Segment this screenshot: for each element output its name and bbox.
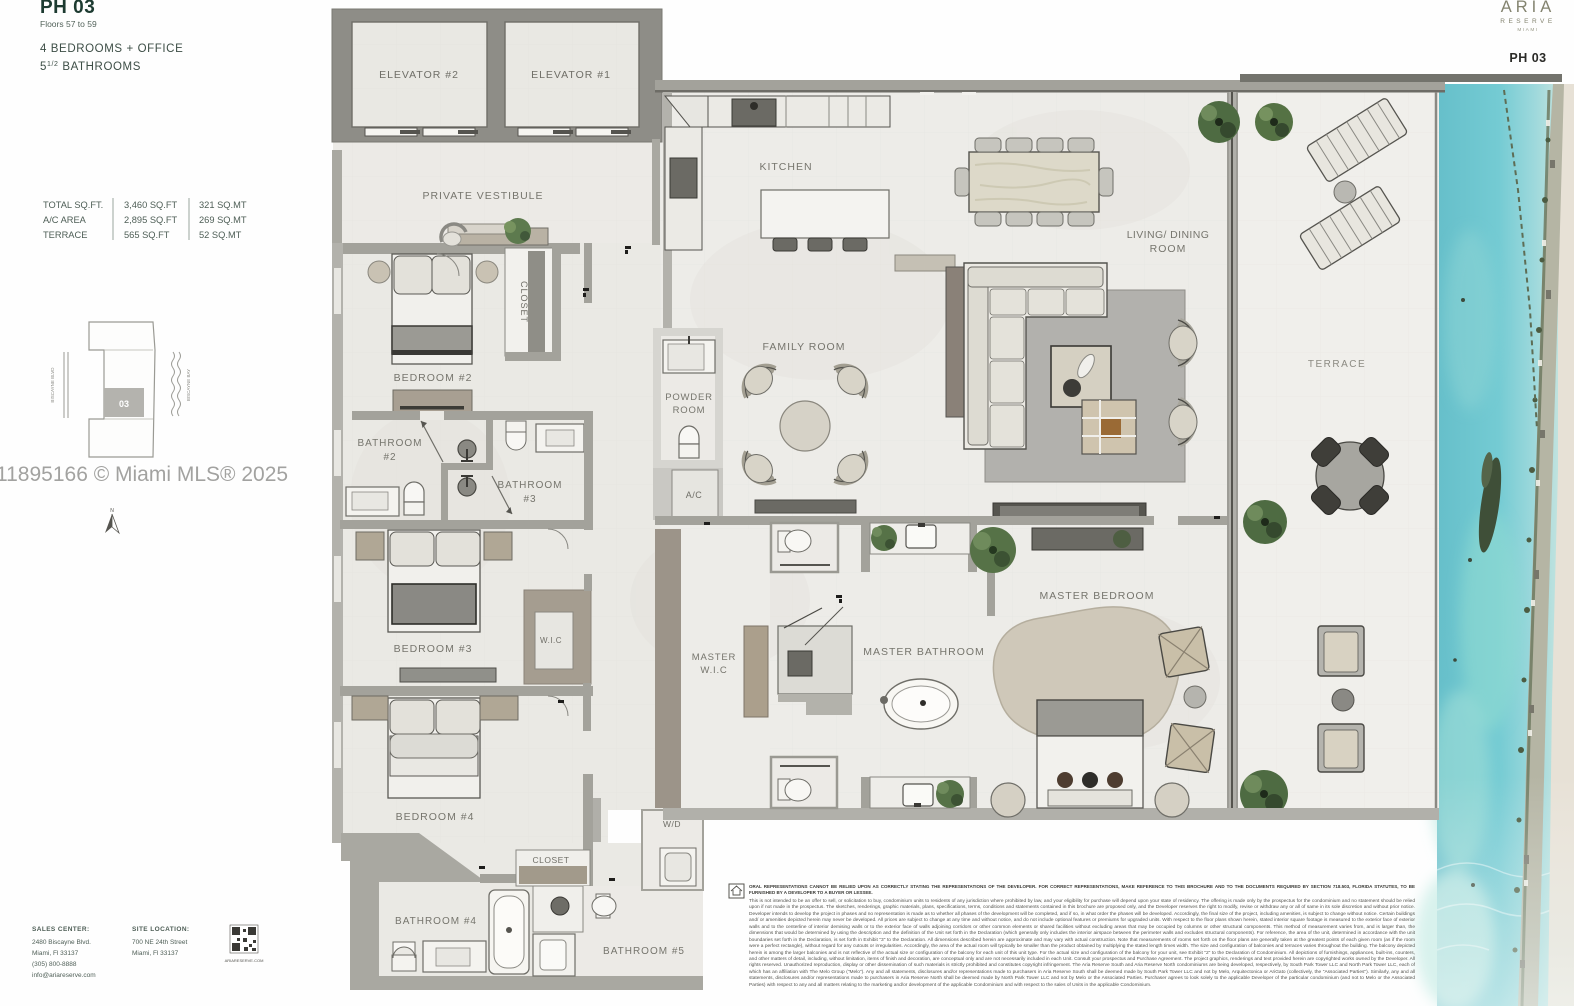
svg-text:51/2 BATHROOMS: 51/2 BATHROOMS: [40, 61, 141, 73]
svg-text:TERRACE: TERRACE: [1308, 359, 1366, 370]
svg-text:A/C AREA: A/C AREA: [43, 215, 87, 225]
svg-text:RESERVE: RESERVE: [1500, 18, 1555, 25]
svg-text:CLOSET: CLOSET: [532, 855, 569, 865]
svg-text:269 SQ.MT: 269 SQ.MT: [199, 215, 247, 225]
svg-text:(305) 800-8888: (305) 800-8888: [32, 961, 77, 968]
svg-text:ELEVATOR #1: ELEVATOR #1: [531, 69, 611, 81]
svg-text:N: N: [110, 508, 114, 514]
svg-text:MASTER BEDROOM: MASTER BEDROOM: [1040, 590, 1155, 602]
svg-text:LIVING/ DINING: LIVING/ DINING: [1127, 229, 1210, 241]
svg-text:BISCAYNE BLVD: BISCAYNE BLVD: [50, 367, 55, 403]
svg-text:ROOM: ROOM: [673, 405, 706, 416]
svg-text:PH 03: PH 03: [40, 0, 95, 18]
svg-text:CLOSET: CLOSET: [519, 281, 529, 323]
svg-text:TERRACE: TERRACE: [43, 230, 87, 240]
svg-text:POWDER: POWDER: [665, 392, 713, 403]
svg-text:Miami, Fl 33137: Miami, Fl 33137: [32, 950, 79, 957]
svg-text:ROOM: ROOM: [1150, 243, 1187, 255]
svg-text:A/C: A/C: [686, 490, 703, 500]
svg-text:BEDROOM #3: BEDROOM #3: [394, 643, 473, 655]
svg-text:321 SQ.MT: 321 SQ.MT: [199, 200, 247, 210]
svg-text:Floors 57 to 59: Floors 57 to 59: [40, 19, 97, 29]
svg-text:BEDROOM #2: BEDROOM #2: [394, 372, 473, 384]
svg-text:565 SQ.FT: 565 SQ.FT: [124, 230, 170, 240]
svg-text:3,460 SQ.FT: 3,460 SQ.FT: [124, 200, 178, 210]
svg-text:BATHROOM: BATHROOM: [497, 480, 562, 491]
svg-text:52 SQ.MT: 52 SQ.MT: [199, 230, 242, 240]
svg-text:BATHROOM #5: BATHROOM #5: [603, 946, 685, 957]
svg-text:FAMILY ROOM: FAMILY ROOM: [763, 341, 846, 353]
svg-text:ARIARESERVE.COM: ARIARESERVE.COM: [225, 958, 264, 963]
svg-text:SALES CENTER:: SALES CENTER:: [32, 926, 90, 933]
svg-text:ARIA: ARIA: [1501, 0, 1556, 16]
svg-text:W.I.C: W.I.C: [540, 636, 562, 645]
svg-text:BATHROOM: BATHROOM: [357, 438, 422, 449]
svg-text:11895166 © Miami MLS® 2025: 11895166 © Miami MLS® 2025: [0, 463, 288, 486]
svg-text:700 NE 24th Street: 700 NE 24th Street: [132, 939, 187, 946]
svg-text:ELEVATOR #2: ELEVATOR #2: [379, 69, 459, 81]
svg-text:2,895 SQ.FT: 2,895 SQ.FT: [124, 215, 178, 225]
svg-text:#2: #2: [383, 452, 396, 463]
svg-text:2480 Biscayne Blvd.: 2480 Biscayne Blvd.: [32, 939, 91, 946]
svg-text:TOTAL SQ.FT.: TOTAL SQ.FT.: [43, 200, 103, 210]
svg-text:KITCHEN: KITCHEN: [759, 161, 812, 173]
svg-text:4 BEDROOMS + OFFICE: 4 BEDROOMS + OFFICE: [40, 43, 183, 55]
svg-text:W/D: W/D: [663, 819, 681, 829]
svg-text:MIAMI: MIAMI: [1517, 27, 1538, 33]
svg-text:03: 03: [119, 399, 129, 409]
svg-text:W.I.C: W.I.C: [700, 665, 727, 676]
svg-text:SITE LOCATION:: SITE LOCATION:: [132, 926, 189, 933]
svg-text:BATHROOM #4: BATHROOM #4: [395, 916, 477, 927]
svg-text:BEDROOM #4: BEDROOM #4: [396, 811, 475, 823]
svg-text:#3: #3: [523, 494, 536, 505]
svg-text:BISCAYNE BAY: BISCAYNE BAY: [186, 369, 191, 401]
svg-text:MASTER BATHROOM: MASTER BATHROOM: [863, 646, 985, 658]
svg-text:PRIVATE VESTIBULE: PRIVATE VESTIBULE: [422, 190, 543, 202]
svg-text:MASTER: MASTER: [692, 652, 736, 663]
svg-text:PH 03: PH 03: [1509, 51, 1546, 65]
svg-text:Miami, Fl 33137: Miami, Fl 33137: [132, 950, 179, 957]
svg-text:info@ariareserve.com: info@ariareserve.com: [32, 972, 96, 979]
